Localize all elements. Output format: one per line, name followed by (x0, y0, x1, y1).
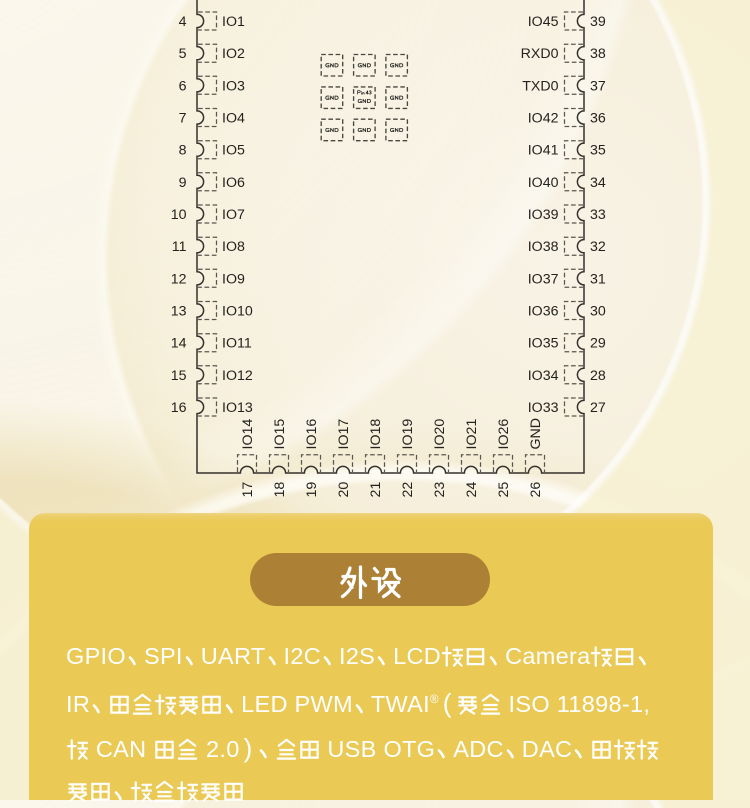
svg-text:7: 7 (179, 111, 187, 127)
svg-text:21: 21 (368, 482, 384, 498)
svg-text:GND: GND (528, 418, 544, 450)
svg-text:38: 38 (590, 46, 606, 62)
svg-text:24: 24 (464, 482, 480, 498)
svg-text:IO21: IO21 (464, 419, 480, 450)
svg-text:32: 32 (590, 239, 606, 255)
svg-text:17: 17 (240, 482, 256, 498)
svg-text:IO34: IO34 (528, 368, 559, 384)
svg-text:20: 20 (336, 482, 352, 498)
svg-text:IO14: IO14 (240, 419, 256, 450)
svg-text:5: 5 (179, 46, 187, 62)
svg-text:6: 6 (179, 78, 187, 94)
svg-text:23: 23 (432, 482, 448, 498)
svg-text:IO9: IO9 (222, 271, 245, 287)
svg-text:36: 36 (590, 111, 606, 127)
svg-text:IO35: IO35 (528, 336, 559, 352)
svg-text:28: 28 (590, 368, 606, 384)
svg-text:IO3: IO3 (222, 78, 245, 94)
svg-text:IO2: IO2 (222, 46, 245, 62)
svg-text:IO36: IO36 (528, 304, 559, 320)
svg-text:11: 11 (172, 239, 187, 255)
svg-text:IO16: IO16 (304, 419, 320, 450)
svg-text:39: 39 (590, 14, 606, 30)
svg-text:37: 37 (590, 78, 606, 94)
svg-text:IO38: IO38 (528, 239, 559, 255)
svg-text:IO11: IO11 (222, 336, 252, 352)
svg-text:16: 16 (171, 400, 187, 416)
svg-text:IO4: IO4 (222, 111, 245, 127)
svg-text:IO42: IO42 (528, 111, 559, 127)
svg-text:9: 9 (179, 175, 187, 191)
svg-text:IO41: IO41 (528, 143, 559, 159)
svg-text:RXD0: RXD0 (521, 46, 559, 62)
svg-text:IO37: IO37 (528, 271, 559, 287)
svg-text:IO17: IO17 (336, 419, 352, 450)
svg-text:10: 10 (171, 207, 187, 223)
svg-text:29: 29 (590, 336, 606, 352)
svg-text:19: 19 (304, 482, 320, 498)
svg-text:8: 8 (179, 143, 187, 159)
svg-text:IO5: IO5 (222, 143, 245, 159)
svg-text:26: 26 (528, 482, 544, 498)
svg-text:IO7: IO7 (222, 207, 245, 223)
svg-text:IO12: IO12 (222, 368, 253, 384)
svg-text:33: 33 (590, 207, 606, 223)
svg-text:35: 35 (590, 143, 606, 159)
svg-text:IO19: IO19 (400, 419, 416, 450)
svg-text:34: 34 (590, 175, 606, 191)
svg-text:IO33: IO33 (528, 400, 559, 416)
svg-text:30: 30 (590, 304, 606, 320)
svg-text:TXD0: TXD0 (522, 78, 558, 94)
svg-text:IO13: IO13 (222, 400, 253, 416)
svg-text:18: 18 (272, 482, 288, 498)
svg-text:IO40: IO40 (528, 175, 559, 191)
svg-text:15: 15 (171, 368, 187, 384)
svg-text:27: 27 (590, 400, 606, 416)
svg-text:IO1: IO1 (222, 14, 245, 30)
svg-text:25: 25 (496, 482, 512, 498)
svg-text:14: 14 (171, 336, 187, 352)
svg-text:31: 31 (590, 271, 606, 287)
svg-text:IO8: IO8 (222, 239, 245, 255)
svg-text:IO39: IO39 (528, 207, 559, 223)
svg-text:13: 13 (171, 304, 187, 320)
svg-text:IO15: IO15 (272, 419, 288, 450)
svg-text:IO26: IO26 (496, 419, 512, 450)
svg-text:4: 4 (179, 14, 187, 30)
svg-text:12: 12 (171, 271, 187, 287)
svg-text:22: 22 (400, 482, 416, 498)
svg-text:IO45: IO45 (528, 14, 559, 30)
svg-text:IO6: IO6 (222, 175, 245, 191)
svg-text:IO20: IO20 (432, 419, 448, 450)
svg-text:IO18: IO18 (368, 419, 384, 450)
svg-text:IO10: IO10 (222, 304, 253, 320)
